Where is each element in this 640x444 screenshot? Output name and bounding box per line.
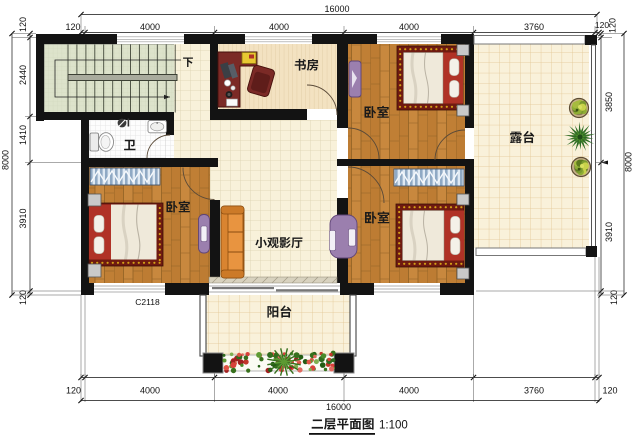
svg-text:4000: 4000 xyxy=(268,386,288,396)
svg-text:120: 120 xyxy=(608,18,618,33)
svg-text:120: 120 xyxy=(66,386,81,396)
svg-text:4000: 4000 xyxy=(399,386,419,396)
svg-text:8000: 8000 xyxy=(624,152,634,172)
svg-text:1:100: 1:100 xyxy=(379,420,408,432)
svg-text:3910: 3910 xyxy=(604,222,614,242)
svg-text:4000: 4000 xyxy=(269,22,289,32)
svg-text:120: 120 xyxy=(18,17,28,32)
svg-text:3760: 3760 xyxy=(524,22,544,32)
svg-text:120: 120 xyxy=(602,386,617,396)
svg-text:120: 120 xyxy=(609,290,619,305)
svg-text:120: 120 xyxy=(18,290,28,305)
svg-text:16000: 16000 xyxy=(324,4,349,14)
svg-text:C2118: C2118 xyxy=(135,297,160,307)
svg-text:3910: 3910 xyxy=(18,208,28,228)
svg-text:2440: 2440 xyxy=(18,65,28,85)
svg-text:3760: 3760 xyxy=(524,386,544,396)
svg-text:3850: 3850 xyxy=(604,92,614,112)
svg-text:1410: 1410 xyxy=(18,125,28,145)
svg-text:4000: 4000 xyxy=(399,22,419,32)
svg-text:4000: 4000 xyxy=(140,22,160,32)
svg-text:120: 120 xyxy=(65,22,80,32)
svg-text:8000: 8000 xyxy=(1,150,11,170)
svg-text:16000: 16000 xyxy=(326,402,351,412)
svg-text:4000: 4000 xyxy=(140,386,160,396)
